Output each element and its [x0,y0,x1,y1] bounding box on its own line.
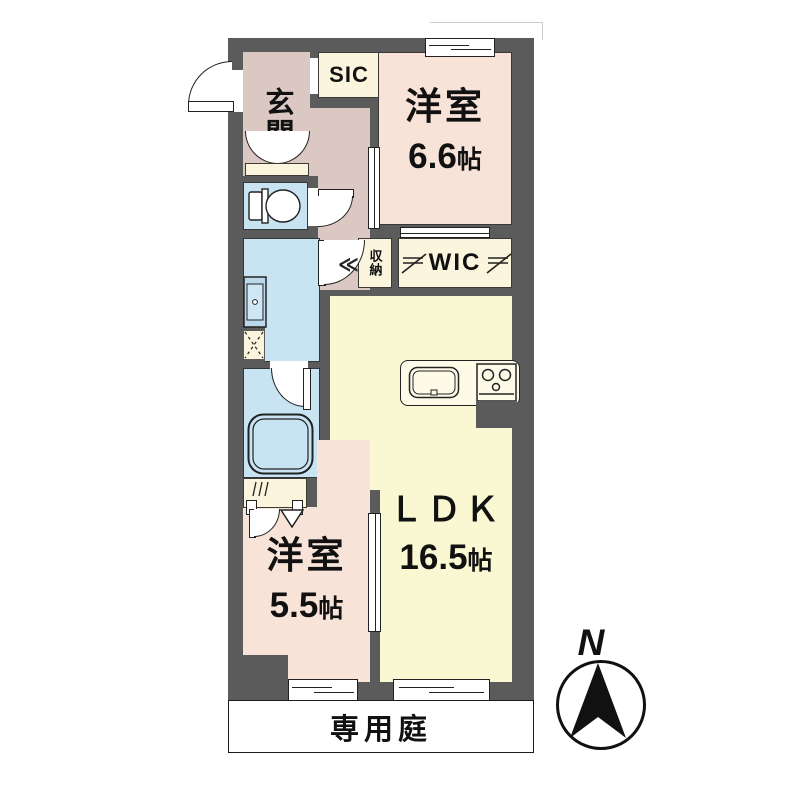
bedroom66-label: 洋室 6.6帖 [378,88,512,174]
ldk-window [393,679,490,701]
bedroom66-name: 洋室 [378,88,512,125]
bedroom55-size-num: 5.5 [270,586,319,625]
bath-door-leaf [303,368,311,410]
sic-label-wrap: SIC [318,52,380,98]
ldk-name: ＬＤＫ [380,493,512,527]
stove-icon [476,363,517,402]
wic-label: WIC [429,251,482,275]
room-bedroom-55-lowerstep [288,655,370,682]
ldk-size-num: 16.5 [399,538,467,577]
ldk-size-unit: 帖 [468,547,493,575]
floorplan-canvas: 玄関 SIC 洋室 6.6帖 収納 WIC [0,0,800,800]
entry-door-leaf [188,101,234,112]
compass-needle-icon [556,660,640,744]
bedroom55-name: 洋室 [243,537,370,574]
garden-label: 専用庭 [330,706,432,748]
hanger-pipe-icon [401,248,427,278]
bedroom55-window [288,679,358,701]
bedroom66-top-window [425,38,495,57]
sic-passage-gap [310,58,318,94]
bathtub-icon [247,413,314,475]
closet-hanger-icon [250,481,272,498]
window-pane-line [292,687,331,688]
bedroom66-size-unit: 帖 [457,146,482,174]
room-genkan-connector [310,108,318,176]
bedroom66-size: 6.6帖 [378,139,512,174]
bedroom55-size: 5.5帖 [243,588,370,623]
bedroom55-size-unit: 帖 [318,595,343,623]
private-garden: 専用庭 [228,700,534,753]
window-pane-line [451,49,490,50]
vanity-icon [243,276,267,328]
kitchen-sink-icon [408,366,460,399]
washer-pan-icon [244,331,264,359]
kitchen-peninsula-wall [476,402,534,428]
toilet-icon [246,186,304,226]
bedroom55-label: 洋室 5.5帖 [243,537,370,623]
sic-label: SIC [329,64,369,86]
room-bedroom-55-upper [317,440,370,507]
hanger-pipe-icon [486,248,512,278]
window-pane-line [399,687,454,688]
fold-door-icon [280,509,304,529]
compass-north-label: N [558,624,624,661]
slider-rail [375,514,376,631]
fold-door-arrow-icon: ≪ [338,255,359,275]
bedroom66-size-num: 6.6 [408,137,457,176]
window-pane-line [429,692,484,693]
slider-rail [401,233,489,234]
shoe-closet-shelf [245,163,309,176]
window-pane-line [314,692,353,693]
entry-door-arc [188,61,232,105]
ldk-label: ＬＤＫ 16.5帖 [380,493,512,575]
window-pane-line [429,45,468,46]
ldk-size: 16.5帖 [380,540,512,575]
toilet-door-gap [308,188,318,226]
slider-rail [374,148,375,228]
wic-opening [400,227,490,238]
storage-label: 収納 [369,249,382,277]
